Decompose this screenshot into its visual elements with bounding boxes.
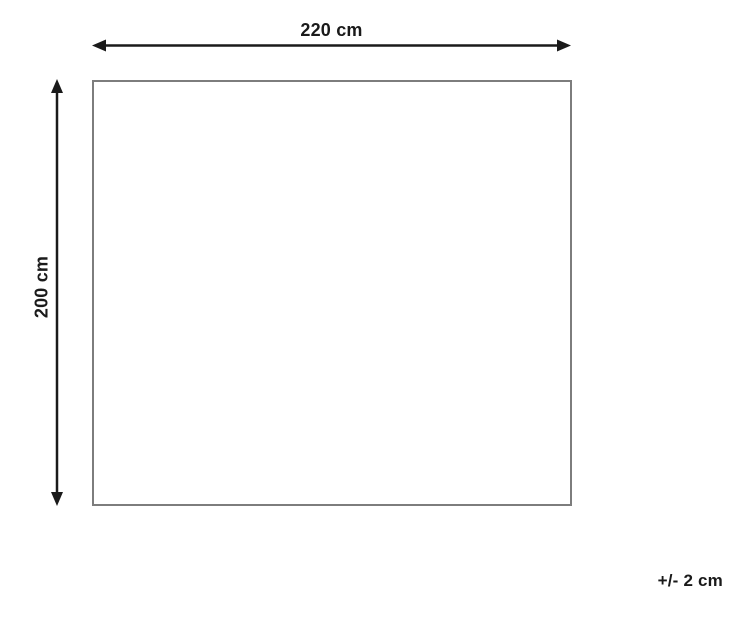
width-dimension-arrow: [92, 40, 571, 52]
width-dimension-label: 220 cm: [92, 20, 571, 41]
height-dimension-label: 200 cm: [32, 256, 53, 318]
height-arrow-top-head-icon: [51, 79, 63, 93]
dimension-diagram: 220 cm 200 cm +/- 2 cm: [0, 0, 756, 619]
height-dimension-arrow: [51, 79, 63, 506]
product-outline-rectangle: [93, 81, 571, 505]
height-arrow-bottom-head-icon: [51, 492, 63, 506]
tolerance-label: +/- 2 cm: [658, 571, 723, 591]
width-arrow-right-head-icon: [557, 40, 571, 52]
width-arrow-left-head-icon: [92, 40, 106, 52]
dimension-drawing: [0, 0, 756, 619]
